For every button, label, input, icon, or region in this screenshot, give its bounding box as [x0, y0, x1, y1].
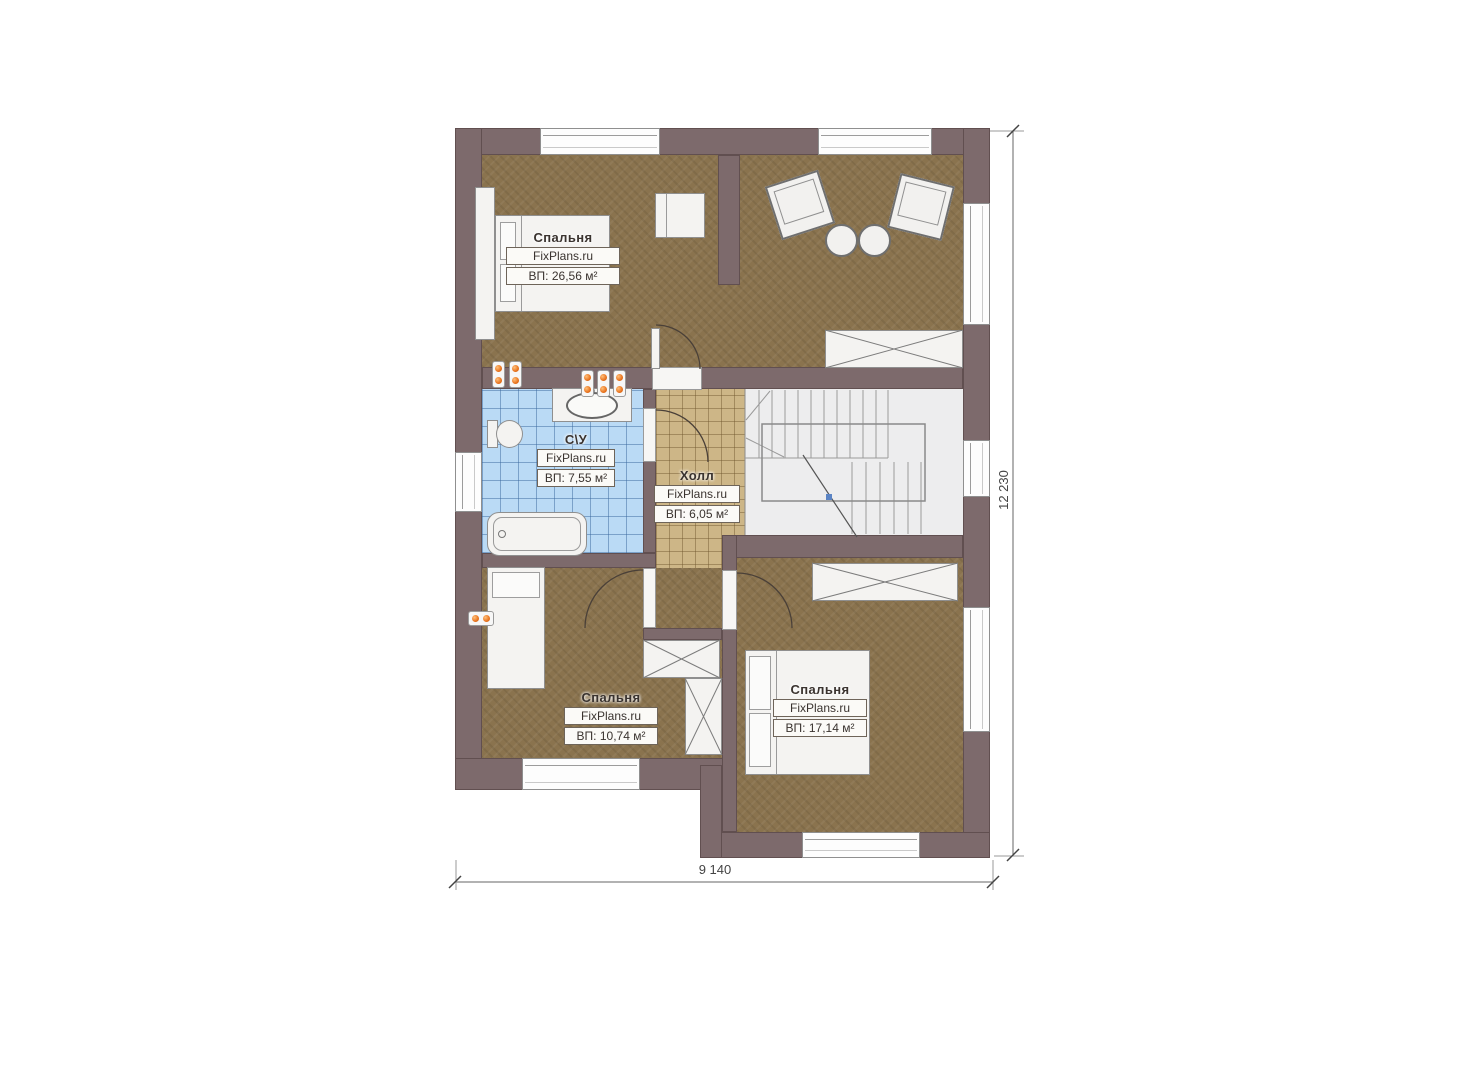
room-name: Спальня: [564, 690, 658, 705]
window-top-left: [540, 128, 660, 155]
brand-watermark: FixPlans.ru: [773, 699, 867, 717]
socket-icon: [597, 370, 610, 397]
brand-watermark: FixPlans.ru: [654, 485, 740, 503]
window-left-bathroom: [455, 452, 482, 512]
socket-icon: [492, 361, 505, 388]
window-right-middle: [963, 440, 990, 497]
window-right-lower: [963, 607, 990, 732]
wardrobe-horizontal: [643, 640, 720, 678]
room-label-bedroom-top: Спальня FixPlans.ru ВП: 26,56 м²: [506, 230, 620, 285]
round-table-left: [825, 224, 858, 257]
wardrobe-bottom-right: [812, 563, 958, 601]
socket-icon: [581, 370, 594, 397]
closet-strip: [475, 187, 495, 340]
room-name: Спальня: [773, 682, 867, 697]
dresser-line: [666, 194, 667, 237]
wardrobe-vertical: [685, 678, 722, 755]
wall-step-left: [700, 765, 722, 858]
room-name: Спальня: [506, 230, 620, 245]
window-bottom-left: [522, 758, 640, 790]
room-area: ВП: 17,14 м²: [773, 719, 867, 737]
door-bedroom-bottom-left: [643, 568, 656, 628]
pillow: [749, 713, 771, 767]
brand-watermark: FixPlans.ru: [564, 707, 658, 725]
window-top-right: [818, 128, 932, 155]
wall-under-stairs: [722, 535, 963, 558]
toilet-bowl: [496, 420, 523, 448]
room-name: С\У: [537, 432, 615, 447]
wall-hall-bottom: [643, 628, 722, 640]
bathtub-drain: [498, 530, 506, 538]
room-area: ВП: 6,05 м²: [654, 505, 740, 523]
dimension-width: 9 140: [675, 862, 755, 877]
brand-watermark: FixPlans.ru: [506, 247, 620, 265]
room-name: Холл: [654, 468, 740, 483]
window-right-upper: [963, 203, 990, 325]
room-label-hall: Холл FixPlans.ru ВП: 6,05 м²: [654, 468, 740, 523]
socket-icon: [613, 370, 626, 397]
brand-watermark: FixPlans.ru: [537, 449, 615, 467]
door-bedroom-bottom-right: [722, 570, 737, 630]
floor-plan-canvas: Спальня FixPlans.ru ВП: 26,56 м² С\У Fix…: [0, 0, 1474, 1080]
socket-icon: [468, 611, 494, 626]
floor-stairwell: [745, 389, 963, 535]
room-area: ВП: 26,56 м²: [506, 267, 620, 285]
room-label-bedroom-bottom-right: Спальня FixPlans.ru ВП: 17,14 м²: [773, 682, 867, 737]
socket-icon: [509, 361, 522, 388]
wall-mid-horizontal: [482, 367, 963, 389]
dimension-height: 12 230: [996, 460, 1012, 520]
door-bathroom: [643, 408, 656, 462]
wardrobe-top-right: [825, 330, 963, 368]
pillow: [749, 656, 771, 710]
pillow: [492, 572, 540, 598]
door-leaf-bedroom-top: [651, 328, 660, 369]
round-table-right: [858, 224, 891, 257]
wall-top-partition: [718, 155, 740, 285]
room-label-bathroom: С\У FixPlans.ru ВП: 7,55 м²: [537, 432, 615, 487]
room-label-bedroom-bottom-left: Спальня FixPlans.ru ВП: 10,74 м²: [564, 690, 658, 745]
window-bottom-right: [802, 832, 920, 858]
room-area: ВП: 7,55 м²: [537, 469, 615, 487]
door-bedroom-top: [652, 367, 702, 390]
dresser: [655, 193, 705, 238]
room-area: ВП: 10,74 м²: [564, 727, 658, 745]
